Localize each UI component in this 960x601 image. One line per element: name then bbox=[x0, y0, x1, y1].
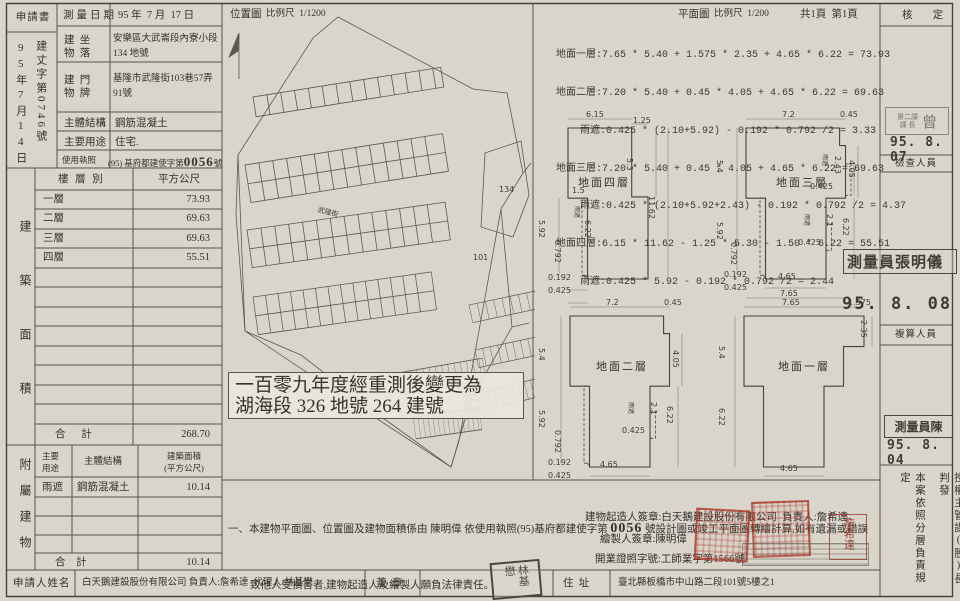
annex-structure-header: 主體結構 bbox=[84, 457, 122, 469]
inspector-stamp: 測量員張明儀 bbox=[843, 249, 957, 274]
dim-label: 1.5 bbox=[572, 186, 585, 195]
annex-total-value: 10.14 bbox=[145, 556, 210, 569]
floor-row-value: 55.51 bbox=[145, 251, 210, 264]
door-value: 基隆市武隆街103巷57弄91號 bbox=[113, 72, 213, 102]
dim-label: 7.65 bbox=[780, 289, 798, 298]
remeasure-annotation-stamp: 一百零九年度經重測後變更為 湖海段 326 地號 264 建號 bbox=[228, 372, 524, 419]
inspector-label: 檢查人員 bbox=[895, 159, 937, 171]
dim-label: 0.425 bbox=[622, 426, 645, 435]
dim-label: 1.25 bbox=[633, 116, 651, 125]
floor-plan-scale: 比例尺 1/200 bbox=[714, 9, 769, 21]
dim-label: 5.4 bbox=[537, 348, 546, 361]
dim-label: 4.65 bbox=[780, 464, 798, 473]
approval-date-3: 95. 8. 04 bbox=[887, 438, 960, 468]
area-col-header: 平方公尺 bbox=[158, 173, 200, 186]
floor-plan-4f: 地面四層 6.151.255.311.621.55.920.792雨遮6.220… bbox=[538, 110, 728, 308]
dim-label: 5.3 bbox=[625, 158, 634, 171]
dim-label: 0.425 bbox=[810, 182, 833, 191]
floor-row-label: 四層 bbox=[43, 251, 64, 264]
dim-label: 11.62 bbox=[647, 196, 656, 219]
dim-label: 4.05 bbox=[847, 160, 856, 178]
structure-value: 鋼筋混凝土 bbox=[115, 117, 168, 130]
site-value: 安樂區大武崙段內寮小段134 地號 bbox=[113, 32, 218, 62]
dim-label: 雨遮 bbox=[803, 214, 812, 226]
annex-row-value: 10.14 bbox=[145, 481, 210, 494]
case-date-vertical: 95年7月14日 bbox=[13, 42, 27, 164]
dim-label: 5.4 bbox=[715, 160, 724, 173]
dim-label: 0.792 bbox=[729, 242, 738, 265]
dim-label: 2.43 bbox=[833, 156, 842, 174]
dim-label: 6.22 bbox=[665, 406, 674, 424]
section-chief-stamp: 第二課課 長 曾 bbox=[885, 107, 949, 135]
dim-label: 101 bbox=[473, 253, 488, 262]
recalc-label: 複算人員 bbox=[895, 330, 937, 342]
license-value: (95) 基府都建使字第0056號 bbox=[108, 154, 222, 170]
registration-stamp bbox=[742, 543, 869, 566]
plan-title: 地面二層 bbox=[596, 358, 648, 374]
calc-line: 地面二層:7.20 * 5.40 + 0.45 * 4.05 + 4.65 * … bbox=[556, 88, 906, 101]
dim-label: 5.92 bbox=[715, 222, 724, 240]
floor-row-label: 三層 bbox=[43, 232, 64, 245]
dim-label: 4.05 bbox=[671, 350, 680, 368]
door-label: 建 門物 牌 bbox=[64, 74, 90, 100]
plan-title: 地面四層 bbox=[578, 174, 630, 190]
floor-total-label: 合 計 bbox=[55, 428, 92, 441]
dim-label: 雨遮 bbox=[573, 206, 582, 218]
floor-col-header: 樓 層 別 bbox=[58, 173, 105, 186]
dim-label: 0.45 bbox=[840, 110, 858, 119]
dim-label: 0.425 bbox=[548, 286, 571, 295]
survey-date-label: 測量日期 bbox=[63, 9, 117, 22]
page-count: 共1頁 第1頁 bbox=[800, 8, 858, 21]
site-label: 建 坐物 落 bbox=[64, 34, 90, 60]
dim-label: 雨遮 bbox=[627, 402, 636, 414]
note-line-1b: 致他人受損害者,建物起造人及繪製人願負法律責任。 bbox=[228, 577, 868, 596]
annex-row-use: 雨遮 bbox=[42, 481, 63, 494]
dim-label: 6.15 bbox=[586, 110, 604, 119]
floor-area-side-label: 建築面積 bbox=[17, 220, 32, 430]
floor-plan-3f: 地面三層 7.20.455.4雨遮2.434.050.425雨遮2.16.220… bbox=[722, 110, 918, 308]
annex-row-structure: 鋼筋混凝土 bbox=[77, 481, 130, 494]
drafter-signature-line: 繪製人簽章:陳明偉 bbox=[600, 533, 687, 546]
application-title: 申請書 bbox=[10, 11, 56, 24]
floor-plan-label: 平面圖 bbox=[678, 8, 710, 21]
dim-label: 0.45 bbox=[664, 298, 682, 307]
dim-label: 6.22 bbox=[841, 218, 850, 236]
dim-label: 5.92 bbox=[537, 220, 546, 238]
survey-result-sheet: 測量日期 95 年 7 月 17 日 位置圖 比例尺 1/1200 平面圖 比例… bbox=[0, 0, 960, 601]
floor-row-value: 73.93 bbox=[145, 193, 210, 206]
dim-label: 0.192 bbox=[548, 273, 571, 282]
dim-label: 134 bbox=[499, 185, 514, 194]
dim-label: 2.35 bbox=[859, 320, 868, 338]
dim-label: 5.92 bbox=[537, 410, 546, 428]
dim-label: 雨遮 bbox=[821, 154, 830, 166]
dim-label: 2.1 bbox=[825, 214, 834, 227]
license-label: 使用執照 bbox=[62, 155, 96, 166]
dim-label: 0.425 bbox=[548, 471, 571, 480]
structure-label: 主體結構 bbox=[64, 117, 106, 130]
annex-total-label: 合 計 bbox=[55, 556, 87, 569]
annex-use-header: 主要用途 bbox=[42, 450, 59, 474]
dim-label: 0.192 bbox=[724, 270, 747, 279]
recalc-stamp: 測量員陳 bbox=[884, 415, 953, 438]
dim-label: 0.192 bbox=[548, 458, 571, 467]
dim-label: 0.792 bbox=[553, 430, 562, 453]
use-label: 主要用途 bbox=[64, 136, 106, 149]
approval-date-2: 95. 8. 08 bbox=[842, 294, 952, 314]
dim-label: 2.1 bbox=[649, 402, 658, 415]
use-value: 住宅. bbox=[115, 136, 139, 149]
survey-date-value: 95 年 7 月 17 日 bbox=[118, 9, 194, 22]
dim-label: 4.65 bbox=[778, 272, 796, 281]
dim-label: 0.792 bbox=[553, 240, 562, 263]
floor-row-value: 69.63 bbox=[145, 212, 210, 225]
delegation-note: 本案依照分層負責規定 授權主管課(股)長判發 bbox=[897, 472, 960, 592]
annex-area-header: 建築面積(平方公尺) bbox=[160, 450, 208, 474]
dim-label: 7.65 bbox=[782, 298, 800, 307]
floor-total-value: 268.70 bbox=[145, 428, 210, 441]
dim-label: 7.2 bbox=[606, 298, 619, 307]
dim-label: 0.425 bbox=[798, 238, 821, 247]
plan-title: 地面一層 bbox=[778, 358, 830, 374]
dim-label: 7.2 bbox=[782, 110, 795, 119]
floor-plan-2f: 地面二層 7.20.455.44.05雨遮2.16.220.4255.920.7… bbox=[538, 298, 728, 480]
applicant-name-label: 申請人姓名 bbox=[13, 577, 71, 590]
case-number-vertical: 建丈字第0746號 bbox=[33, 40, 47, 166]
dim-label: 6.22 bbox=[717, 408, 726, 426]
floor-row-label: 一層 bbox=[43, 193, 64, 206]
dim-label: 0.425 bbox=[724, 283, 747, 292]
approval-label: 核 定 bbox=[902, 9, 948, 22]
dim-label: 6.22 bbox=[583, 220, 592, 238]
dim-label: 5.4 bbox=[717, 346, 726, 359]
floor-row-label: 二層 bbox=[43, 212, 64, 225]
dim-label: 4.65 bbox=[600, 460, 618, 469]
annex-side-label: 附屬建物 bbox=[17, 458, 32, 563]
floor-row-value: 69.63 bbox=[145, 232, 210, 245]
dim-label: 武隆街 bbox=[317, 205, 340, 220]
calc-line: 地面一層:7.65 * 5.40 + 1.575 * 2.35 + 4.65 *… bbox=[556, 50, 906, 63]
